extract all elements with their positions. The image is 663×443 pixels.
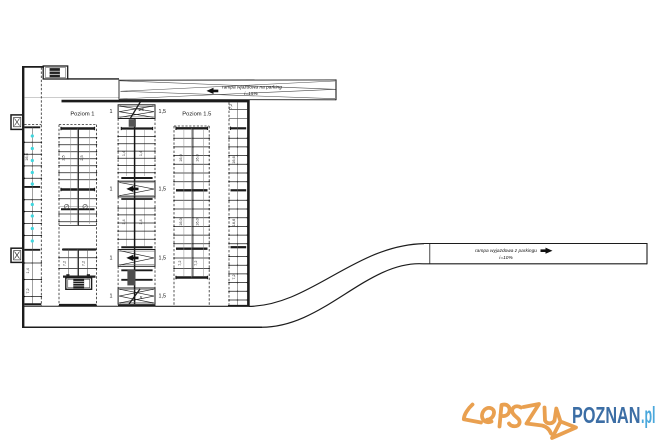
svg-text:7,2: 7,2	[229, 104, 233, 109]
svg-text:1,4: 1,4	[139, 151, 143, 156]
svg-text:i=10%: i=10%	[499, 255, 513, 261]
svg-text:1: 1	[110, 109, 113, 115]
svg-text:1,5: 1,5	[159, 187, 167, 193]
svg-text:2,5: 2,5	[80, 155, 84, 160]
svg-text:7,2: 7,2	[194, 261, 198, 266]
svg-text:Poziom 1: Poziom 1	[70, 111, 94, 117]
svg-text:1,4: 1,4	[122, 219, 126, 224]
svg-text:7,2: 7,2	[81, 261, 85, 266]
svg-text:16,6: 16,6	[232, 219, 236, 226]
svg-text:Poziom 1.5: Poziom 1.5	[182, 111, 211, 117]
svg-text:16,6: 16,6	[232, 156, 236, 163]
svg-text:16,0: 16,0	[179, 154, 183, 161]
svg-text:rampa wjazdowa na parking: rampa wjazdowa na parking	[222, 85, 282, 91]
svg-text:7,2: 7,2	[232, 274, 236, 279]
svg-text:i=15%: i=15%	[244, 91, 258, 97]
svg-text:25: 25	[138, 107, 145, 113]
svg-text:7,2: 7,2	[62, 261, 66, 266]
svg-text:1,4: 1,4	[139, 219, 143, 224]
svg-text:2,5: 2,5	[62, 155, 66, 160]
svg-text:1,5: 1,5	[159, 255, 167, 261]
svg-text:1: 1	[110, 187, 113, 193]
svg-text:5: 5	[140, 295, 143, 301]
svg-text:1,5: 1,5	[159, 109, 167, 115]
svg-text:7,2: 7,2	[178, 261, 182, 266]
svg-text:16,0: 16,0	[195, 218, 199, 225]
svg-text:POZNAN: POZNAN	[572, 402, 641, 428]
svg-text:16,6: 16,6	[25, 153, 29, 160]
svg-text:1,5: 1,5	[159, 294, 167, 300]
svg-text:.pl: .pl	[641, 402, 656, 428]
svg-text:1,4: 1,4	[26, 268, 30, 273]
svg-text:rampa wyjazdowa z parkingu: rampa wyjazdowa z parkingu	[475, 248, 537, 254]
svg-text:16,0: 16,0	[179, 218, 183, 225]
svg-text:7,2: 7,2	[26, 288, 30, 293]
svg-text:1: 1	[110, 294, 113, 300]
svg-text:1: 1	[110, 255, 113, 261]
svg-text:16,0: 16,0	[195, 154, 199, 161]
svg-text:1,4: 1,4	[122, 151, 126, 156]
